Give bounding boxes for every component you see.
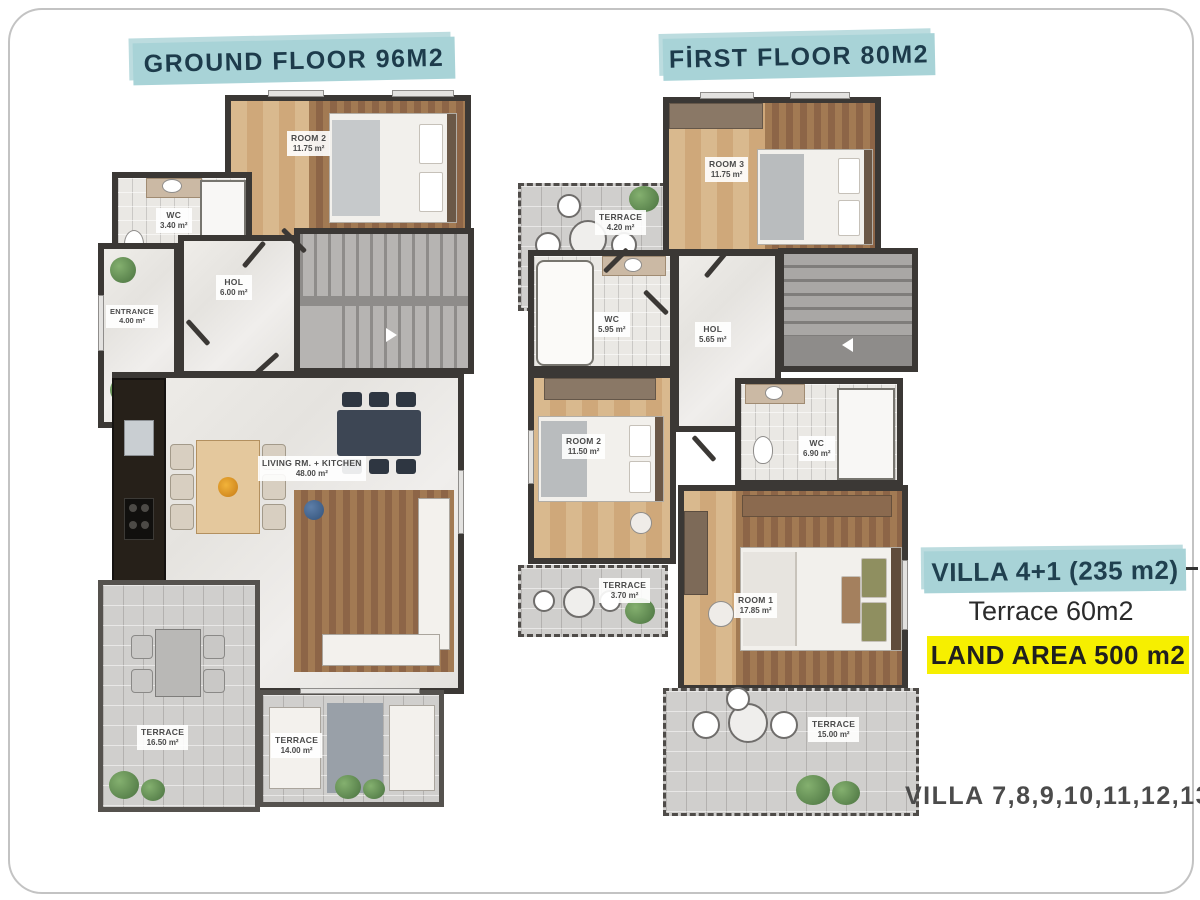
gf-burner-icon — [129, 521, 137, 529]
ff-door — [691, 435, 716, 462]
ff-window — [528, 430, 534, 484]
first-floor-banner: FİRST FLOOR 80M2 — [663, 33, 936, 81]
gf-dining-chair — [170, 444, 194, 470]
ff-wc-mid-sink-icon — [765, 386, 783, 400]
ff-terrace-bottom: TERRACE 15.00 m² — [663, 688, 919, 816]
ff-stairs — [778, 248, 918, 372]
ff-terrace-small: TERRACE 3.70 m² — [518, 565, 668, 637]
ff-window — [700, 92, 754, 99]
terrace-total-label: Terrace 60m2 — [946, 596, 1156, 630]
gf-terrace2-sofa — [389, 705, 435, 791]
ff-room3-label: ROOM 3 11.75 m² — [705, 157, 748, 182]
gf-terrace-chair — [203, 669, 225, 693]
gf-room2-bed — [329, 113, 457, 223]
ff-terrace-bottom-plant-icon — [796, 775, 830, 805]
villa-type-banner: VILLA 4+1 (235 m2) — [924, 549, 1186, 594]
gf-terrace2-plant-icon — [335, 775, 361, 799]
gf-kitchen-sink-icon — [124, 420, 154, 456]
gf-burner-icon — [141, 504, 149, 512]
ff-room2-nightstand — [630, 512, 652, 534]
gf-terrace-chair — [131, 669, 153, 693]
gf-terrace-chair — [131, 635, 153, 659]
gf-window — [392, 90, 454, 97]
ff-room2-blanket — [541, 421, 587, 497]
leader-line — [1186, 567, 1198, 570]
gf-terrace-plant-icon — [141, 779, 165, 801]
gf-terrace2-plant-icon — [363, 779, 385, 799]
first-floor-banner-label: FİRST FLOOR 80M2 — [669, 40, 930, 74]
villa-numbers-label: VILLA 7,8,9,10,11,12,13 — [905, 782, 1200, 811]
ff-wc-top-sink-icon — [624, 258, 642, 272]
gf-wc-label: WC 3.40 m² — [156, 208, 192, 233]
ff-terrace-small-table — [563, 586, 595, 618]
ff-wc-top-label: WC 5.95 m² — [594, 312, 630, 337]
ff-wc-mid-label: WC 6.90 m² — [799, 436, 835, 461]
gf-burner-icon — [141, 521, 149, 529]
ff-room3-pillow — [838, 158, 860, 194]
ff-wc-mid-toilet-icon — [753, 436, 773, 464]
gf-dining-chair — [170, 474, 194, 500]
ff-room1-pillow — [861, 602, 887, 642]
gf-dining-bowl-icon — [218, 477, 238, 497]
ff-terrace-bottom-plant-icon — [832, 781, 860, 805]
ff-terrace-bottom-chair — [770, 711, 798, 739]
ff-room3-blanket — [760, 154, 804, 240]
ff-room1-chair — [708, 601, 734, 627]
gf-window — [98, 295, 104, 351]
gf-dining-chair — [170, 504, 194, 530]
ff-wc-top: WC 5.95 m² — [528, 250, 676, 372]
ff-terrace-top-label: TERRACE 4.20 m² — [595, 210, 646, 235]
ff-terrace-bottom-chair — [692, 711, 720, 739]
gf-stairs — [294, 228, 474, 374]
gf-wc-sink-icon — [162, 179, 182, 193]
ff-room1-label: ROOM 1 17.85 m² — [734, 593, 777, 618]
land-area-label: LAND AREA 500 m2 — [931, 640, 1186, 671]
gf-terrace-plant-icon — [109, 771, 139, 799]
ff-room2-bed — [538, 416, 664, 502]
gf-hol: HOL 6.00 m² — [178, 235, 300, 377]
gf-living-plant-icon — [304, 500, 324, 520]
floor-plan-sheet: GROUND FLOOR 96M2 FİRST FLOOR 80M2 ROOM … — [0, 0, 1200, 900]
ff-room1-desk — [684, 511, 708, 595]
gf-terrace-left: TERRACE 16.50 m² — [98, 580, 260, 812]
gf-terrace-right: TERRACE 14.00 m² — [258, 690, 444, 807]
ff-window — [902, 560, 908, 630]
gf-kitchen-stove-icon — [124, 498, 154, 540]
ff-room1-headboard — [891, 548, 901, 650]
gf-dining-table — [196, 440, 260, 534]
ff-room1: ROOM 1 17.85 m² — [678, 485, 908, 691]
ff-room3-headboard — [864, 150, 872, 244]
gf-terrace-chair — [203, 635, 225, 659]
ff-terrace-bottom-chair — [726, 687, 750, 711]
ff-room2-wardrobe — [544, 378, 656, 400]
ff-room2-headboard — [655, 417, 663, 501]
gf-room2-pillow — [419, 124, 443, 164]
gf-room2: ROOM 2 11.75 m² — [225, 95, 471, 243]
ff-terrace-top-chair — [557, 194, 581, 218]
ff-wc-mid-shower — [837, 388, 895, 480]
ff-room3-wardrobe — [669, 103, 763, 129]
gf-entrance-label: ENTRANCE 4.00 m² — [106, 305, 158, 328]
ff-room2: ROOM 2 11.50 m² — [528, 372, 676, 564]
ground-floor-banner-label: GROUND FLOOR 96M2 — [143, 43, 444, 78]
ff-room3-bed — [757, 149, 873, 245]
gf-entrance-plant-icon — [110, 257, 136, 283]
gf-sofa — [418, 498, 450, 650]
gf-room2-blanket — [332, 120, 380, 216]
gf-room2-pillow — [419, 172, 443, 212]
ff-wc-mid: WC 6.90 m² — [735, 378, 903, 486]
gf-dark-table — [337, 410, 421, 456]
gf-window — [458, 470, 464, 534]
gf-dark-chair — [342, 392, 362, 407]
ff-window — [790, 92, 850, 99]
gf-dark-chair — [396, 459, 416, 474]
gf-living-label: LIVING RM. + KITCHEN 48.00 m² — [258, 456, 366, 481]
gf-terrace-table — [155, 629, 201, 697]
ff-terrace-small-label: TERRACE 3.70 m² — [599, 578, 650, 603]
ff-terrace-small-chair — [533, 590, 555, 612]
gf-dark-chair — [369, 459, 389, 474]
land-area-highlight: LAND AREA 500 m2 — [927, 636, 1189, 674]
ff-room2-label: ROOM 2 11.50 m² — [562, 434, 605, 459]
ff-hol-label: HOL 5.65 m² — [695, 322, 731, 347]
ff-terrace-top-plant-icon — [629, 186, 659, 212]
gf-dining-chair — [262, 504, 286, 530]
gf-stairs-landing — [300, 296, 468, 306]
gf-room2-headboard — [447, 114, 456, 222]
gf-hol-label: HOL 6.00 m² — [216, 275, 252, 300]
gf-stairs-arrow-icon — [386, 328, 397, 342]
gf-dark-chair — [369, 392, 389, 407]
ff-room3: ROOM 3 11.75 m² — [663, 97, 881, 255]
ff-stairs-arrow-icon — [842, 338, 853, 352]
gf-burner-icon — [129, 504, 137, 512]
ff-room3-pillow — [838, 200, 860, 236]
ff-room2-pillow — [629, 461, 651, 493]
gf-stairs-lower-landing — [300, 306, 334, 368]
ground-floor-banner: GROUND FLOOR 96M2 — [133, 37, 456, 86]
ff-wc-top-tub — [536, 260, 594, 366]
ff-room1-pillow — [841, 576, 861, 624]
gf-room2-label: ROOM 2 11.75 m² — [287, 131, 330, 156]
villa-type-label: VILLA 4+1 (235 m2) — [931, 554, 1179, 588]
gf-sofa — [322, 634, 440, 666]
gf-window — [268, 90, 324, 97]
gf-terrace-left-label: TERRACE 16.50 m² — [137, 725, 188, 750]
gf-sliding-door — [300, 688, 420, 694]
ff-room1-pillow — [861, 558, 887, 598]
gf-terrace-right-label: TERRACE 14.00 m² — [271, 733, 322, 758]
ff-terrace-bottom-label: TERRACE 15.00 m² — [808, 717, 859, 742]
gf-dark-chair — [396, 392, 416, 407]
ff-room2-pillow — [629, 425, 651, 457]
ff-room1-bench — [742, 495, 892, 517]
